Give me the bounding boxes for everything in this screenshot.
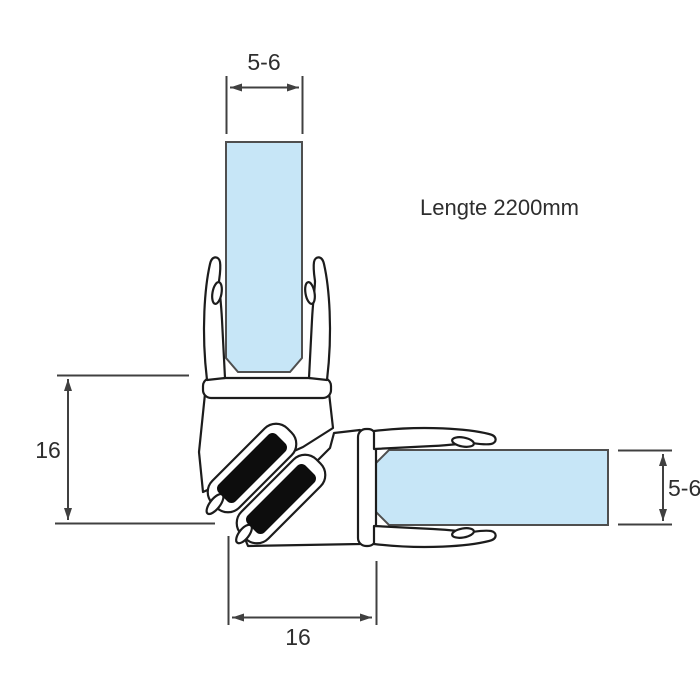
seal-finger-left [204,257,225,380]
top-dimension: 5-6 [227,49,303,134]
seal-finger-right [309,257,330,380]
technical-diagram: 5-6 16 5-6 16 Lengte 2200mm [0,0,700,700]
vertical-glass-panel [226,142,302,372]
dimension-label: 5-6 [668,475,700,501]
seal-profile-drawing: 5-6 16 5-6 16 Lengte 2200mm [0,0,700,700]
seal-finger-bottom [374,526,496,547]
dimension-label: 5-6 [247,49,280,75]
dimension-label: 16 [35,437,61,463]
dimension-label: 16 [285,624,311,650]
horizontal-glass-panel [376,450,608,525]
left-dimension: 16 [35,376,215,524]
right-dimension: 5-6 [618,451,700,525]
seal-finger-top [374,428,496,449]
bottom-dimension: 16 [229,536,377,650]
seal-channel-bar [203,378,331,398]
length-note: Lengte 2200mm [420,195,579,220]
